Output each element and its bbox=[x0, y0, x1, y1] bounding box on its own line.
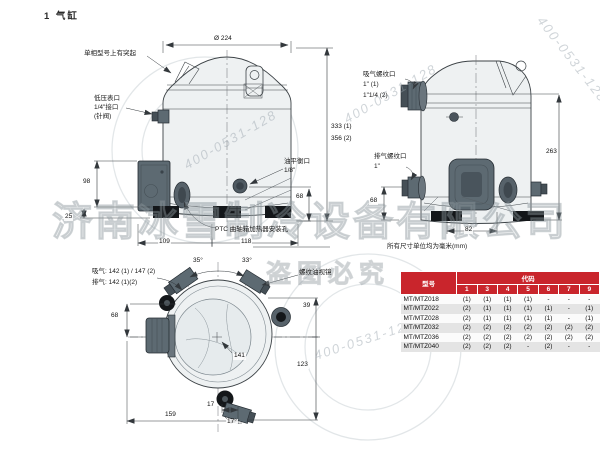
dim-39: 39 bbox=[302, 303, 311, 310]
code-cell: (2) bbox=[477, 333, 497, 342]
dim-98: 98 bbox=[82, 179, 91, 186]
table-col-5: 5 bbox=[518, 285, 538, 295]
drawing-page: 济南冰雪制冷设备有限公司 盗图必究 400-0531-128 400-0531-… bbox=[0, 0, 600, 450]
label-oil-balance-line2: 1/8" bbox=[284, 167, 295, 175]
code-cell: - bbox=[518, 342, 538, 351]
dim-356: 356 (2) bbox=[330, 136, 353, 143]
code-cell: (1) bbox=[518, 304, 538, 313]
table-col-6: 6 bbox=[538, 285, 558, 295]
table-col-3: 3 bbox=[477, 285, 497, 295]
dim-333: 333 (1) bbox=[330, 124, 353, 131]
code-cell: (2) bbox=[579, 333, 600, 342]
dim-109: 109 bbox=[158, 239, 171, 246]
code-cell: (1) bbox=[477, 295, 497, 305]
dim-68-front: 68 bbox=[295, 194, 304, 201]
dim-25: 25 bbox=[64, 214, 73, 221]
code-cell: (2) bbox=[477, 342, 497, 351]
code-cell: (1) bbox=[518, 295, 538, 305]
code-cell: (2) bbox=[457, 342, 477, 351]
label-oil-sight-glass: 螺纹油视镜 bbox=[299, 269, 332, 277]
table-col-7: 7 bbox=[559, 285, 579, 295]
code-table-body: MT/MTZ018(1)(1)(1)(1)---MT/MTZ022(2)(1)(… bbox=[401, 295, 600, 352]
dim-68-bottom: 68 bbox=[110, 313, 119, 320]
table-col-1: 1 bbox=[457, 285, 477, 295]
dim-82: 82 bbox=[464, 227, 473, 234]
code-cell: (1) bbox=[538, 314, 558, 323]
table-header-model: 型号 bbox=[401, 272, 457, 295]
code-cell: (1) bbox=[477, 304, 497, 313]
code-cell: (2) bbox=[457, 314, 477, 323]
label-discharge-port-line2: 1" bbox=[374, 163, 380, 171]
model-cell: MT/MTZ032 bbox=[401, 323, 457, 332]
model-cell: MT/MTZ036 bbox=[401, 333, 457, 342]
label-discharge-port-line1: 排气螺纹口 bbox=[374, 153, 407, 161]
code-cell: (2) bbox=[579, 323, 600, 332]
code-cell: - bbox=[559, 304, 579, 313]
code-cell: - bbox=[579, 342, 600, 351]
page-title: 1 气缸 bbox=[44, 8, 79, 22]
code-cell: (2) bbox=[497, 333, 517, 342]
table-row: MT/MTZ032(2)(2)(2)(2)(2)(2)(2) bbox=[401, 323, 600, 332]
code-cell: (2) bbox=[559, 323, 579, 332]
code-cell: - bbox=[538, 295, 558, 305]
model-cell: MT/MTZ040 bbox=[401, 342, 457, 351]
label-lp-port-line1: 低压表口 bbox=[94, 95, 120, 103]
code-cell: (1) bbox=[477, 314, 497, 323]
code-cell: - bbox=[559, 342, 579, 351]
code-cell: (2) bbox=[518, 333, 538, 342]
code-cell: (2) bbox=[538, 342, 558, 351]
dim-angle-17: 17° bbox=[226, 419, 238, 426]
code-cell: (2) bbox=[457, 304, 477, 313]
label-single-phase-protrusion: 单相型号上有突起 bbox=[84, 50, 136, 58]
label-bottom-suction: 吸气: 142 (1) / 147 (2) bbox=[92, 268, 155, 276]
code-cell: (2) bbox=[518, 323, 538, 332]
dim-angle-33: 33° bbox=[241, 258, 253, 265]
code-cell: (1) bbox=[579, 304, 600, 313]
dim-141: 141 bbox=[233, 353, 246, 360]
code-cell: (2) bbox=[497, 323, 517, 332]
code-cell: (1) bbox=[457, 295, 477, 305]
table-row: MT/MTZ040(2)(2)(2)-(2)-- bbox=[401, 342, 600, 351]
code-cell: (1) bbox=[497, 314, 517, 323]
table-row: MT/MTZ036(2)(2)(2)(2)(2)(2)(2) bbox=[401, 333, 600, 342]
table-row: MT/MTZ022(2)(1)(1)(1)(1)-(1) bbox=[401, 304, 600, 313]
model-cell: MT/MTZ028 bbox=[401, 314, 457, 323]
label-bottom-discharge: 排气: 142 (1)(2) bbox=[92, 279, 137, 287]
table-col-9: 9 bbox=[579, 285, 600, 295]
label-lp-port-line2: 1/4"接口 bbox=[94, 104, 118, 112]
table-row: MT/MTZ028(2)(1)(1)(1)(1)-(1) bbox=[401, 314, 600, 323]
label-suction-port-line2: 1" (1) bbox=[363, 81, 379, 89]
code-cell: (2) bbox=[457, 333, 477, 342]
code-cell: (2) bbox=[538, 323, 558, 332]
code-cell: (1) bbox=[538, 304, 558, 313]
code-cell: (2) bbox=[538, 333, 558, 342]
units-note: 所有尺寸单位均为毫米(mm) bbox=[387, 240, 467, 250]
label-oil-balance-line1: 油平衡口 bbox=[284, 158, 310, 166]
code-cell: (1) bbox=[579, 314, 600, 323]
code-cell: (2) bbox=[497, 342, 517, 351]
dim-123: 123 bbox=[296, 362, 309, 369]
dim-diameter-224: Ø 224 bbox=[213, 36, 233, 43]
dim-17: 17 bbox=[206, 402, 215, 409]
model-code-table: 型号 代码 1 3 4 5 6 7 9 MT/MTZ018(1)(1)(1)(1… bbox=[400, 271, 600, 352]
label-suction-port-line1: 吸气螺纹口 bbox=[363, 71, 396, 79]
code-cell: (1) bbox=[497, 295, 517, 305]
code-cell: - bbox=[579, 295, 600, 305]
label-lp-port-line3: (针阀) bbox=[94, 113, 111, 121]
dim-118: 118 bbox=[240, 239, 252, 246]
label-suction-port-line3: 1"1/4 (2) bbox=[363, 92, 388, 100]
code-cell: (2) bbox=[477, 323, 497, 332]
table-col-4: 4 bbox=[497, 285, 517, 295]
dim-159: 159 bbox=[164, 412, 177, 419]
dim-263: 263 bbox=[545, 149, 558, 156]
table-header-code: 代码 bbox=[457, 272, 600, 285]
code-cell: (1) bbox=[497, 304, 517, 313]
table-row: MT/MTZ018(1)(1)(1)(1)--- bbox=[401, 295, 600, 305]
model-cell: MT/MTZ022 bbox=[401, 304, 457, 313]
dim-angle-35: 35° bbox=[192, 258, 204, 265]
code-cell: (2) bbox=[559, 333, 579, 342]
code-cell: (2) bbox=[457, 323, 477, 332]
dim-68-side: 68 bbox=[369, 198, 378, 205]
code-cell: - bbox=[559, 314, 579, 323]
model-cell: MT/MTZ018 bbox=[401, 295, 457, 305]
label-ptc-heater-hole: PTC 曲轴箱加热器安装孔 bbox=[215, 226, 288, 234]
code-cell: (1) bbox=[518, 314, 538, 323]
code-cell: - bbox=[559, 295, 579, 305]
company-watermark: 济南冰雪制冷设备有限公司 bbox=[52, 189, 568, 247]
